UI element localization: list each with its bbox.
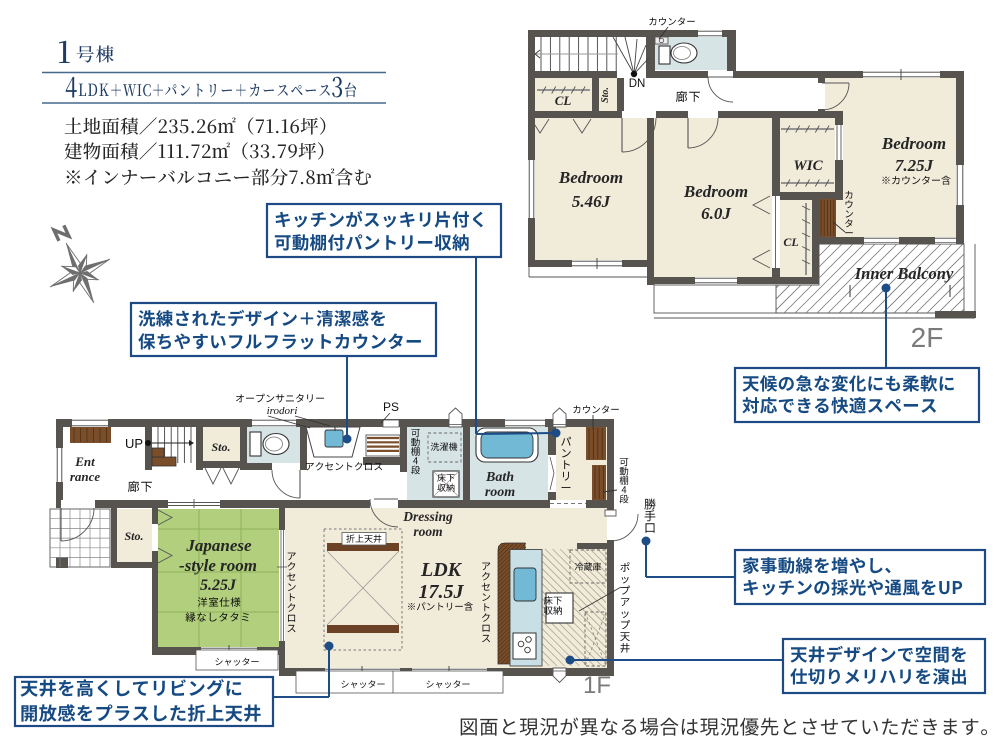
svg-text:rance: rance [70, 469, 101, 484]
svg-text:Dressing: Dressing [402, 509, 453, 524]
svg-text:irodori: irodori [267, 405, 298, 417]
svg-text:1F: 1F [583, 672, 611, 699]
svg-text:5.25J: 5.25J [200, 577, 237, 594]
svg-text:DN: DN [629, 78, 646, 90]
svg-text:5.46J: 5.46J [572, 192, 611, 211]
svg-text:CL: CL [783, 235, 798, 249]
svg-text:17.5J: 17.5J [419, 581, 465, 603]
svg-text:Inner Balcony: Inner Balcony [854, 264, 954, 283]
svg-text:room: room [485, 485, 515, 500]
svg-text:6.0J: 6.0J [701, 204, 731, 223]
svg-text:Bath: Bath [485, 470, 514, 485]
svg-text:Bedroom: Bedroom [558, 168, 623, 187]
svg-text:CL: CL [555, 93, 572, 108]
svg-text:PS: PS [383, 400, 399, 414]
svg-text:room: room [413, 524, 442, 539]
svg-text:UP: UP [125, 436, 143, 451]
svg-text:Sto.: Sto. [600, 87, 611, 103]
svg-text:Japanese: Japanese [185, 536, 252, 555]
svg-text:LDK: LDK [420, 559, 463, 581]
svg-text:Ent: Ent [74, 454, 95, 469]
svg-text:Sto.: Sto. [124, 529, 143, 543]
svg-text:WIC: WIC [793, 158, 823, 174]
svg-text:Sto.: Sto. [211, 440, 230, 454]
svg-text:7.25J: 7.25J [895, 156, 934, 175]
svg-text:2F: 2F [911, 322, 944, 353]
svg-text:-style room: -style room [179, 556, 257, 575]
svg-text:Bedroom: Bedroom [683, 182, 748, 201]
svg-text:Bedroom: Bedroom [881, 134, 946, 153]
